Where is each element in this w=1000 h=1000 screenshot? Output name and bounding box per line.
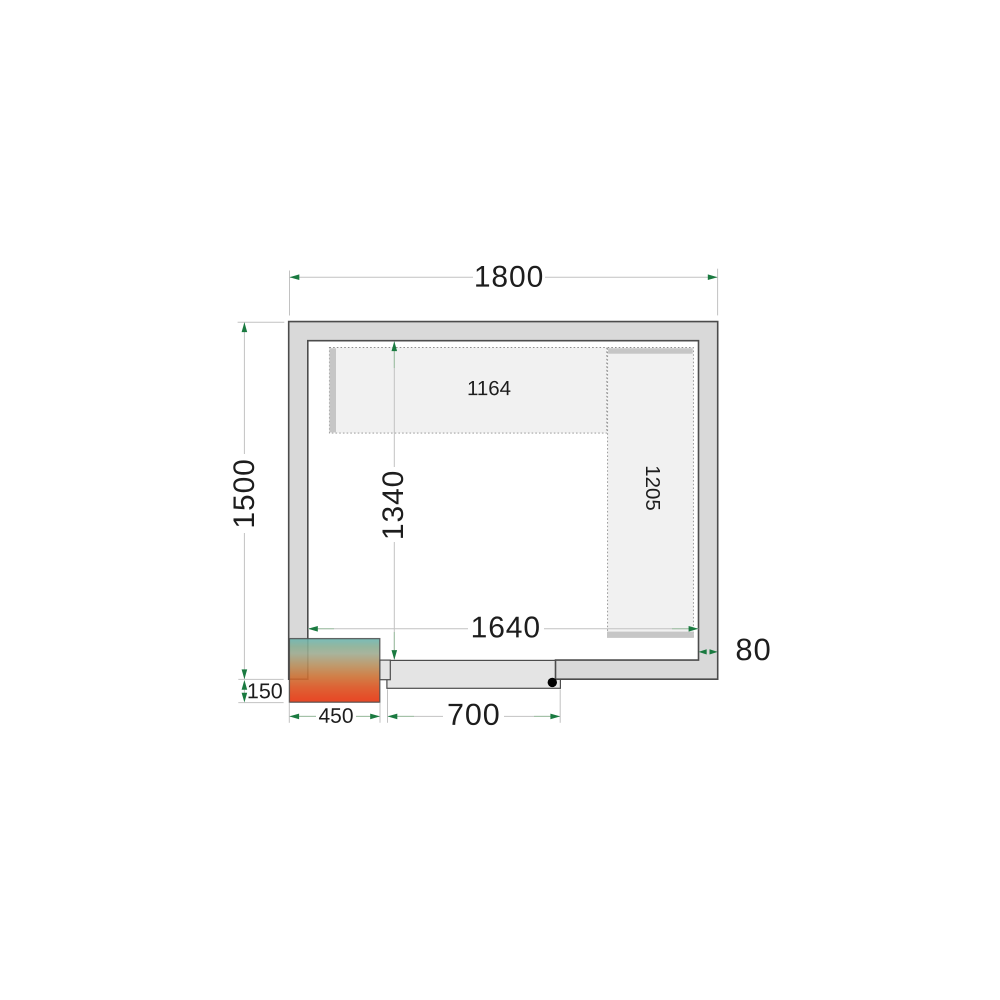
svg-text:1800: 1800 — [474, 261, 544, 294]
svg-text:1500: 1500 — [228, 458, 261, 528]
svg-text:450: 450 — [318, 705, 353, 728]
svg-text:1640: 1640 — [471, 611, 541, 644]
svg-text:1164: 1164 — [467, 377, 511, 400]
svg-text:700: 700 — [447, 698, 501, 732]
svg-text:1205: 1205 — [641, 465, 664, 511]
svg-text:80: 80 — [735, 632, 771, 667]
svg-text:1340: 1340 — [377, 470, 410, 540]
svg-text:150: 150 — [247, 679, 283, 703]
